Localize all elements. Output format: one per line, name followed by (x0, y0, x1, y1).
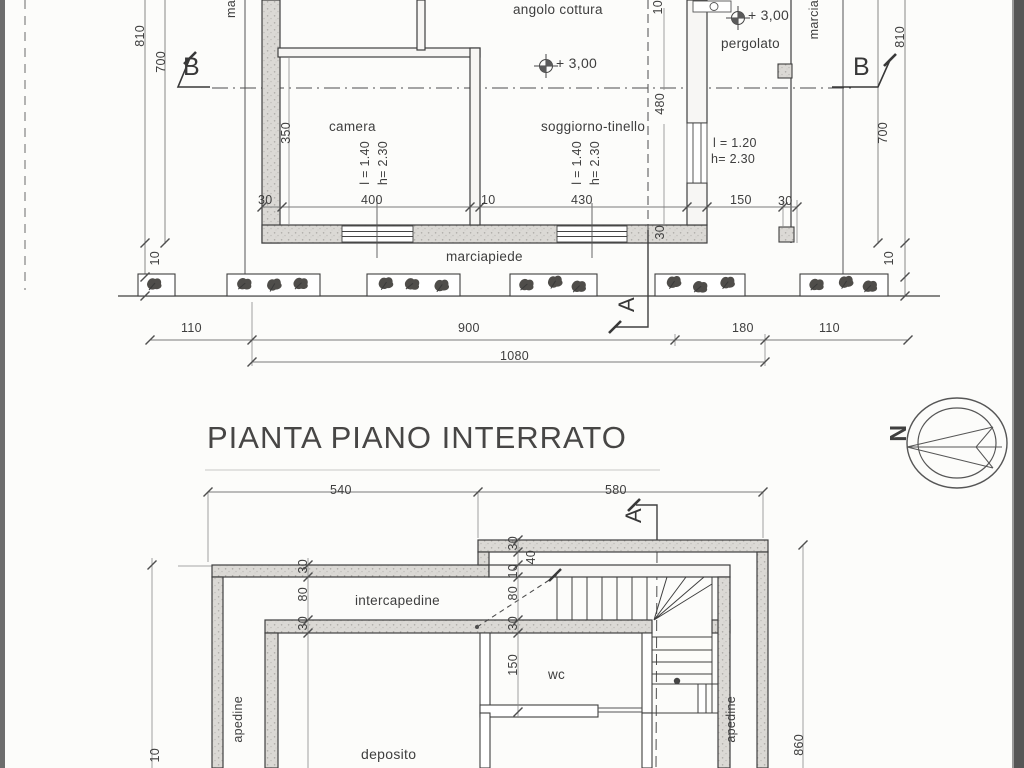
wall-exterior-bottom (262, 225, 707, 243)
section-marker-a-top (609, 0, 648, 333)
section-letter-b-right: B (853, 53, 870, 82)
dim-480-soggiorno: 480 (653, 93, 667, 115)
marciapiede-label-right-cut: marcia (807, 0, 821, 39)
scan-edge-left (0, 0, 5, 768)
wall-outer-top-left (212, 565, 489, 577)
plan-linework (0, 0, 1024, 768)
marciapiede-label-left-cut: ma (224, 0, 238, 18)
north-letter: N (884, 425, 911, 442)
window-spec-pergolato-h: h= 2.30 (711, 152, 755, 166)
pergolato-post-top (778, 64, 792, 78)
wall-outer-left (212, 577, 223, 768)
dim-10-partition: 10 (481, 193, 496, 207)
dim-1080: 1080 (500, 349, 529, 363)
dim-110-b: 110 (819, 321, 840, 335)
dim-80-intercapedine-mid: 80 (506, 586, 520, 601)
marciapiede-label: marciapiede (446, 249, 523, 264)
wall-inner-left (265, 633, 278, 768)
dim-540: 540 (330, 483, 352, 497)
dim-150-pergolato: 150 (730, 193, 752, 207)
window-spec-pergolato-l: l = 1.20 (713, 136, 757, 150)
dim-80-intercapedine-left: 80 (296, 587, 310, 602)
dim-10-gap-mid: 10 (506, 564, 520, 579)
dim-30-outer-wall-mid: 30 (506, 536, 520, 551)
dim-30-inner-wall-mid: 30 (506, 616, 520, 631)
scan-edge-right (1012, 0, 1024, 768)
dim-700-right: 700 (876, 122, 890, 144)
room-label-deposito: deposito (361, 746, 416, 762)
dim-700-left: 700 (154, 51, 168, 73)
plan-title: PIANTA PIANO INTERRATO (207, 420, 627, 456)
wall-soggiorno-pergolato-upper (687, 0, 707, 123)
staircase (557, 577, 718, 713)
dim-810-right: 810 (893, 26, 907, 48)
dim-110-a: 110 (181, 321, 202, 335)
dim-400-camera: 400 (361, 193, 383, 207)
window-spec-soggiorno-h: h= 2.30 (588, 141, 602, 185)
north-arrow (907, 398, 1007, 488)
scanned-floor-plan-page: angolo cottura camera soggiorno-tinello … (0, 0, 1024, 768)
top-edge-symbol (693, 1, 731, 12)
room-label-camera: camera (329, 119, 376, 134)
dim-30-inner-wall-left: 30 (296, 616, 310, 631)
wall-camera-soggiorno (470, 48, 480, 225)
section-letter-a-bottom: A (621, 508, 647, 523)
room-label-pergolato: pergolato (721, 36, 780, 51)
dim-30-outer-wall-left: 30 (296, 559, 310, 574)
window-spec-camera-l: l = 1.40 (358, 141, 372, 185)
room-label-wc: wc (548, 667, 565, 682)
wall-outer-step (478, 552, 489, 565)
bottom-plan (152, 492, 803, 768)
dim-30-pergolato: 30 (778, 194, 793, 208)
dim-900: 900 (458, 321, 480, 335)
dim-10-left: 10 (148, 251, 162, 266)
dim-10-top: 10 (651, 0, 665, 15)
intercapedine-label-right-cut: apedine (724, 696, 738, 743)
dim-40-stair: 40 (524, 550, 538, 565)
room-label-intercapedine: intercapedine (355, 593, 440, 608)
section-letter-a-top: A (614, 297, 640, 312)
level-label-pergolato: + 3,00 (748, 7, 789, 23)
dim-150-wc: 150 (506, 654, 520, 676)
dim-10-bottom-left-cut: 10 (148, 748, 162, 763)
dim-30-left-wall: 30 (258, 193, 273, 207)
dim-580: 580 (605, 483, 627, 497)
wall-outer-right (757, 552, 768, 768)
room-label-soggiorno: soggiorno-tinello (541, 119, 645, 134)
wall-inner-top (265, 620, 652, 633)
dim-180: 180 (732, 321, 754, 335)
wc-door-sill (598, 708, 642, 712)
room-label-angolo-cottura: angolo cottura (513, 2, 603, 17)
dim-top-ext (178, 492, 763, 566)
pergolato-post-bottom (779, 227, 794, 242)
wall-stair-north (489, 565, 730, 577)
window-spec-soggiorno-l: l = 1.40 (570, 141, 584, 185)
window-spec-camera-h: h= 2.30 (376, 141, 390, 185)
wall-outer-top-right (478, 540, 768, 552)
wall-camera-top (278, 48, 480, 57)
window-camera (342, 226, 413, 242)
level-label-soggiorno: + 3,00 (556, 55, 597, 71)
window-pergolato (687, 123, 707, 183)
level-marker-soggiorno (534, 54, 558, 78)
intercapedine-label-left-cut: apedine (231, 696, 245, 743)
dim-10-right: 10 (882, 251, 896, 266)
section-letter-b-left: B (183, 53, 200, 82)
wall-niche (417, 0, 425, 50)
dim-860-right: 860 (792, 734, 806, 756)
dim-30-bottom-wall: 30 (653, 225, 667, 240)
dim-430-soggiorno: 430 (571, 193, 593, 207)
dim-810-left: 810 (133, 25, 147, 47)
dim-350-camera: 350 (279, 122, 293, 144)
